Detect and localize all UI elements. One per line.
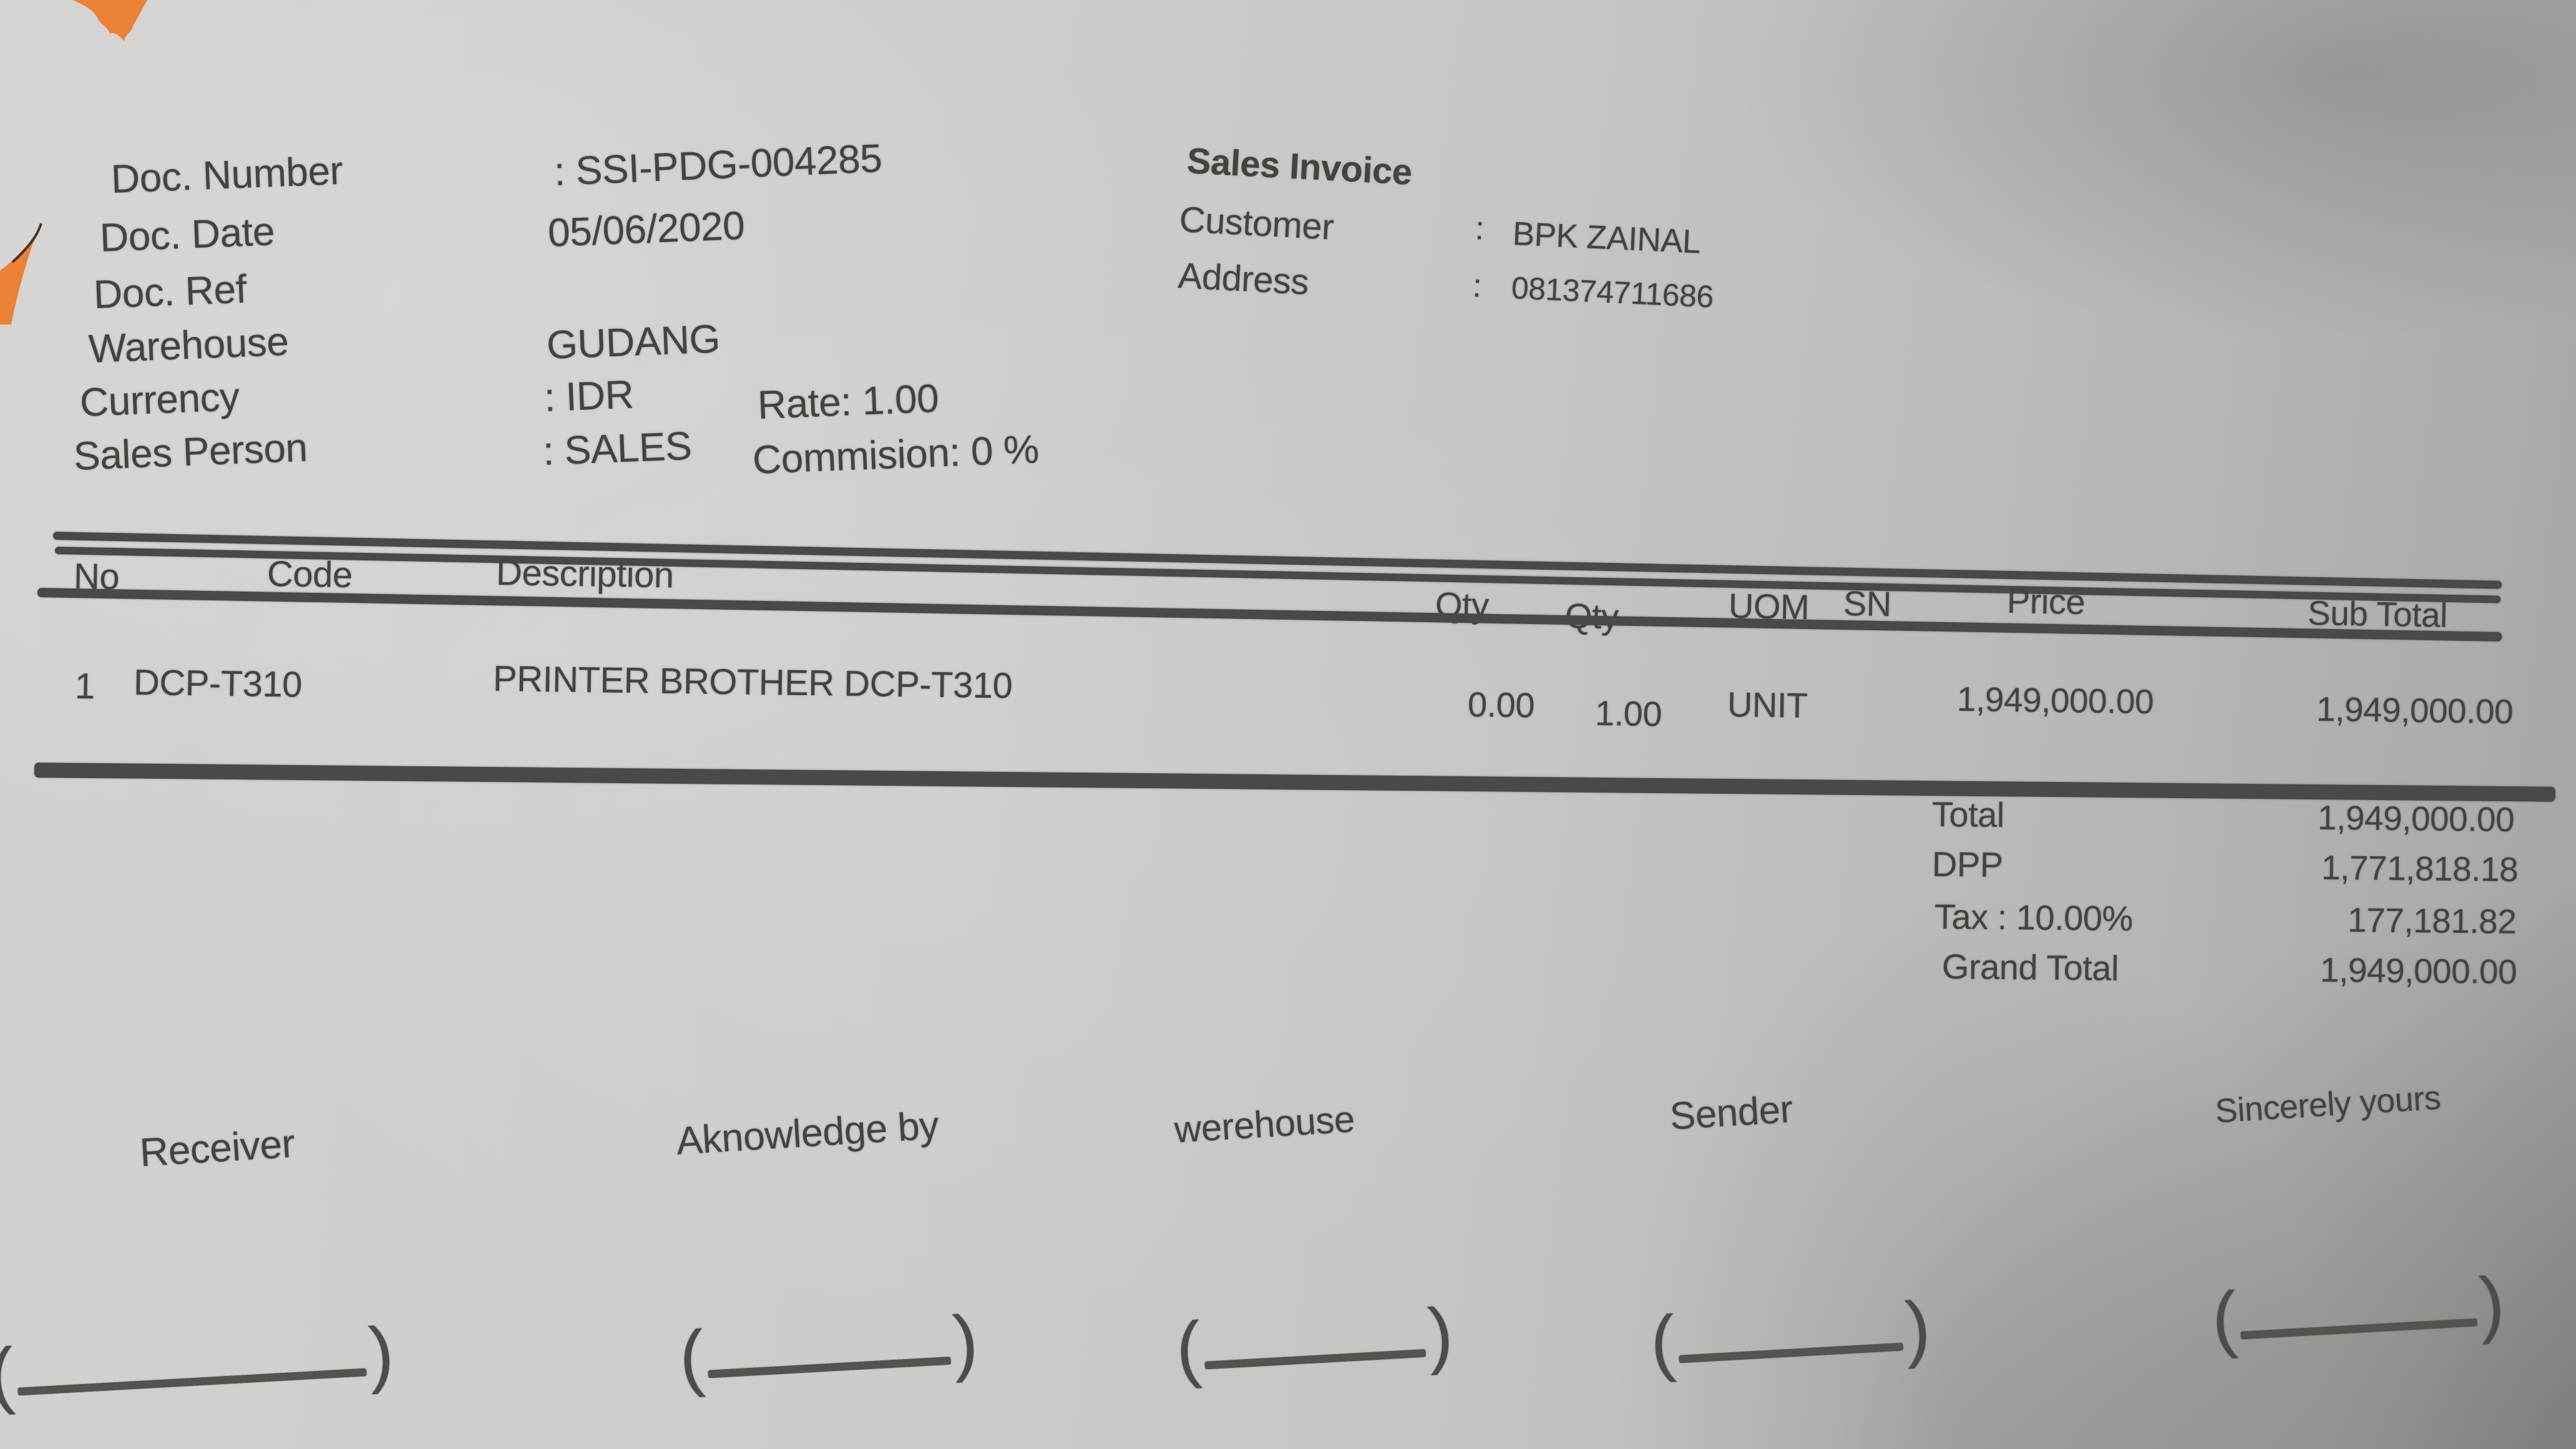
total-label: Total (1932, 795, 2004, 834)
signature-line-warehouse: ( ) (1174, 1300, 1455, 1383)
signature-rule (2240, 1318, 2477, 1339)
cell-description: PRINTER BROTHER DCP-T310 (493, 659, 1013, 706)
orange-paper-corner-top (60, 0, 154, 53)
col-header-description: Description (495, 553, 674, 595)
col-header-code: Code (266, 554, 353, 595)
paren-close-icon: ) (952, 1307, 980, 1377)
grand-total-label: Grand Total (1942, 947, 2119, 988)
cell-qty2: 1.00 (1595, 694, 1662, 733)
doc-date-value: 05/06/2020 (547, 203, 746, 255)
invoice-photo: ) Doc. Number : SSI-PDG-004285 Doc. Date… (0, 0, 2576, 1449)
commission-value: Commision: 0 % (752, 427, 1040, 482)
warehouse-value: GUDANG (546, 316, 721, 367)
paren-close-icon: ) (1427, 1300, 1455, 1369)
signature-line-sincerely: ( ) (2210, 1269, 2506, 1354)
paren-open-icon: ( (678, 1323, 706, 1392)
total-value: 1,949,000.00 (2318, 799, 2515, 839)
paren-open-icon: ( (0, 1340, 16, 1410)
cell-qty1: 0.00 (1468, 685, 1535, 724)
doc-number-label: Doc. Number (110, 149, 344, 202)
tax-label: Tax : 10.00% (1934, 897, 2133, 938)
customer-colon: : (1475, 211, 1485, 247)
paren-open-icon: ( (1174, 1314, 1203, 1383)
stray-ink-mark: ) (0, 144, 1, 193)
cell-no: 1 (75, 666, 95, 706)
signature-label-sincerely: Sincerely yours (2214, 1080, 2442, 1130)
doc-ref-label: Doc. Ref (93, 267, 247, 317)
doc-date-label: Doc. Date (99, 209, 276, 260)
rate-value: Rate: 1.00 (757, 376, 940, 427)
sales-person-label: Sales Person (73, 426, 308, 479)
page-title: Sales Invoice (1186, 141, 1413, 193)
address-colon: : (1472, 268, 1483, 305)
signature-label-warehouse: werehouse (1173, 1098, 1356, 1151)
dpp-value: 1,771,818.18 (2321, 849, 2519, 889)
paren-close-icon: ) (1904, 1294, 1932, 1363)
col-header-sub-total: Sub Total (2307, 594, 2447, 634)
currency-value: : IDR (544, 373, 635, 420)
address-label: Address (1177, 256, 1309, 303)
signature-rule (17, 1368, 367, 1395)
tax-value: 177,181.82 (2348, 901, 2517, 940)
paren-close-icon: ) (2478, 1269, 2506, 1339)
address-value: 081374711686 (1511, 271, 1714, 315)
cell-sub-total: 1,949,000.00 (2316, 690, 2514, 731)
grand-total-value: 1,949,000.00 (2320, 951, 2517, 991)
signature-label-sender: Sender (1669, 1088, 1794, 1138)
paren-open-icon: ( (1649, 1308, 1677, 1377)
signature-line-acknowledge: ( ) (678, 1307, 980, 1392)
cell-price: 1,949,000.00 (1957, 680, 2154, 721)
table-header-rule (37, 588, 2502, 642)
paren-close-icon: ) (367, 1319, 395, 1388)
cell-code: DCP-T310 (134, 663, 303, 705)
signature-label-acknowledge: Aknowledge by (675, 1104, 940, 1163)
customer-label: Customer (1178, 200, 1334, 248)
orange-paper-corner-left (0, 217, 49, 326)
signature-label-receiver: Receiver (139, 1121, 296, 1174)
dpp-label: DPP (1932, 845, 2003, 884)
signature-rule (1204, 1349, 1426, 1369)
paren-open-icon: ( (2210, 1284, 2238, 1354)
currency-label: Currency (79, 374, 240, 424)
customer-value: BPK ZAINAL (1512, 216, 1702, 261)
col-header-sn: SN (1843, 584, 1891, 623)
cell-uom: UNIT (1727, 685, 1808, 724)
signature-rule (708, 1356, 951, 1378)
doc-number-value: : SSI-PDG-004285 (554, 136, 883, 193)
col-header-price: Price (2006, 582, 2085, 622)
signature-rule (1679, 1342, 1903, 1363)
sales-person-value: : SALES (542, 424, 693, 473)
signature-line-receiver: ( ) (0, 1319, 396, 1410)
warehouse-label: Warehouse (88, 320, 290, 371)
table-bottom-rule (34, 763, 2555, 802)
signature-line-sender: ( ) (1649, 1294, 1932, 1377)
